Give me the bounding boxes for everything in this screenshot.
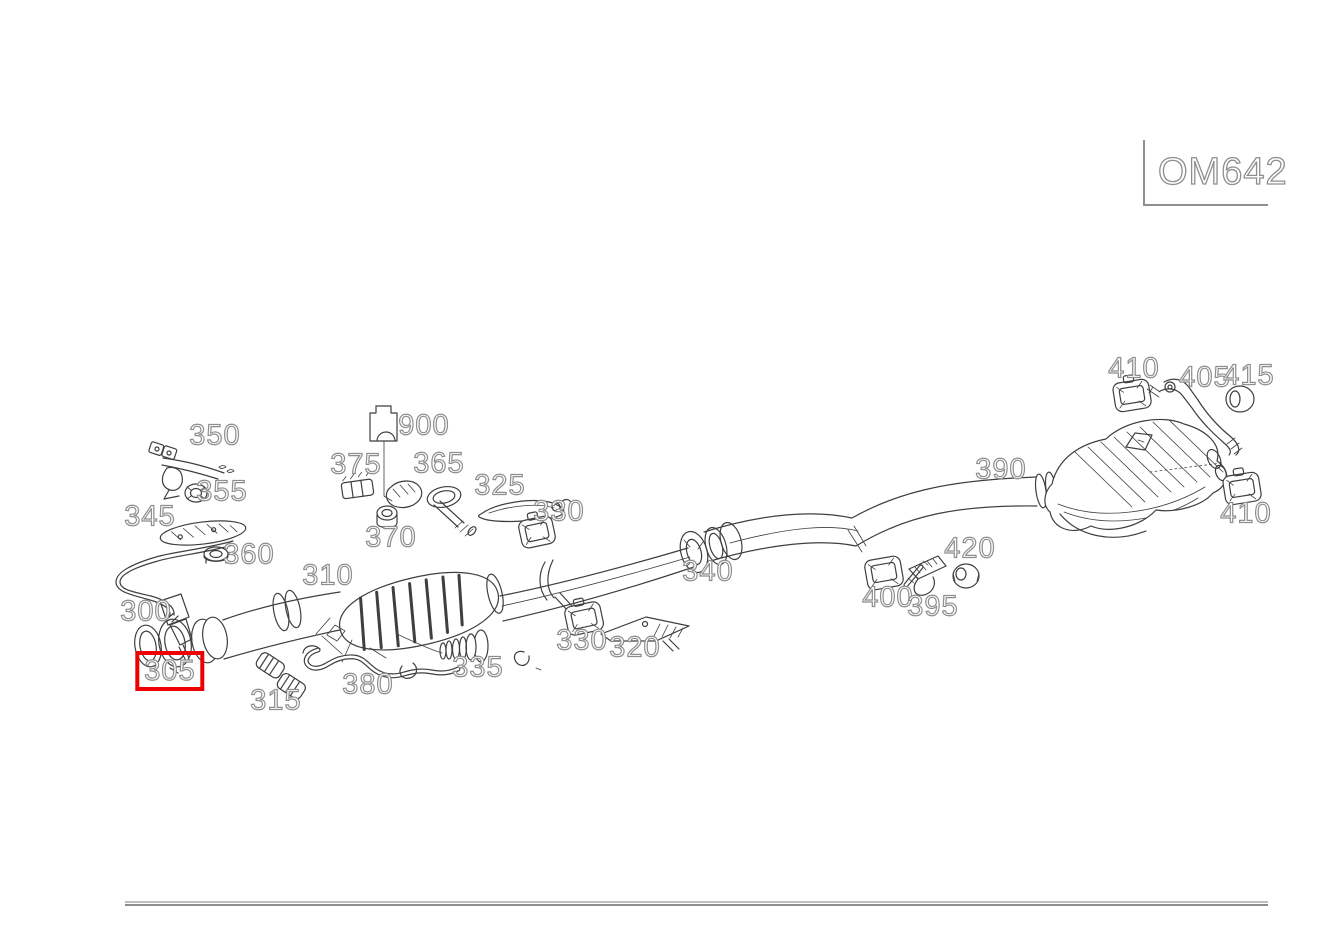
part-callout-395[interactable]: 395: [907, 593, 958, 622]
part-callout-345[interactable]: 345: [124, 503, 175, 532]
part-callout-330-upper[interactable]: 330: [533, 498, 584, 527]
part-callout-335[interactable]: 335: [452, 654, 503, 683]
part-callout-355[interactable]: 355: [196, 478, 247, 507]
part-callout-370[interactable]: 370: [365, 524, 416, 553]
part-callout-415[interactable]: 415: [1223, 362, 1274, 391]
part-callout-315[interactable]: 315: [250, 687, 301, 716]
parts-diagram-page: 3503553453603003053153803103753709003653…: [0, 0, 1326, 941]
part-callout-400[interactable]: 400: [862, 584, 913, 613]
part-callout-305[interactable]: 305: [135, 651, 204, 691]
part-callout-365[interactable]: 365: [413, 450, 464, 479]
engine-code: OM642: [1158, 151, 1288, 194]
part-callouts-layer: 3503553453603003053153803103753709003653…: [0, 0, 1326, 941]
part-callout-340[interactable]: 340: [682, 558, 733, 587]
part-callout-420[interactable]: 420: [944, 535, 995, 564]
part-callout-330-lower[interactable]: 330: [556, 627, 607, 656]
part-callout-320[interactable]: 320: [609, 634, 660, 663]
horizontal-scrollbar[interactable]: [125, 901, 1268, 906]
engine-code-box: OM642: [1143, 140, 1268, 206]
part-callout-390[interactable]: 390: [975, 456, 1026, 485]
part-callout-410-front[interactable]: 410: [1108, 355, 1159, 384]
part-callout-310[interactable]: 310: [302, 562, 353, 591]
part-callout-325[interactable]: 325: [474, 472, 525, 501]
part-callout-410-rear[interactable]: 410: [1220, 500, 1271, 529]
part-callout-380[interactable]: 380: [342, 671, 393, 700]
part-callout-300[interactable]: 300: [120, 598, 171, 627]
part-callout-375[interactable]: 375: [330, 451, 381, 480]
part-callout-900[interactable]: 900: [398, 412, 449, 441]
part-callout-360[interactable]: 360: [223, 541, 274, 570]
part-callout-350[interactable]: 350: [189, 422, 240, 451]
